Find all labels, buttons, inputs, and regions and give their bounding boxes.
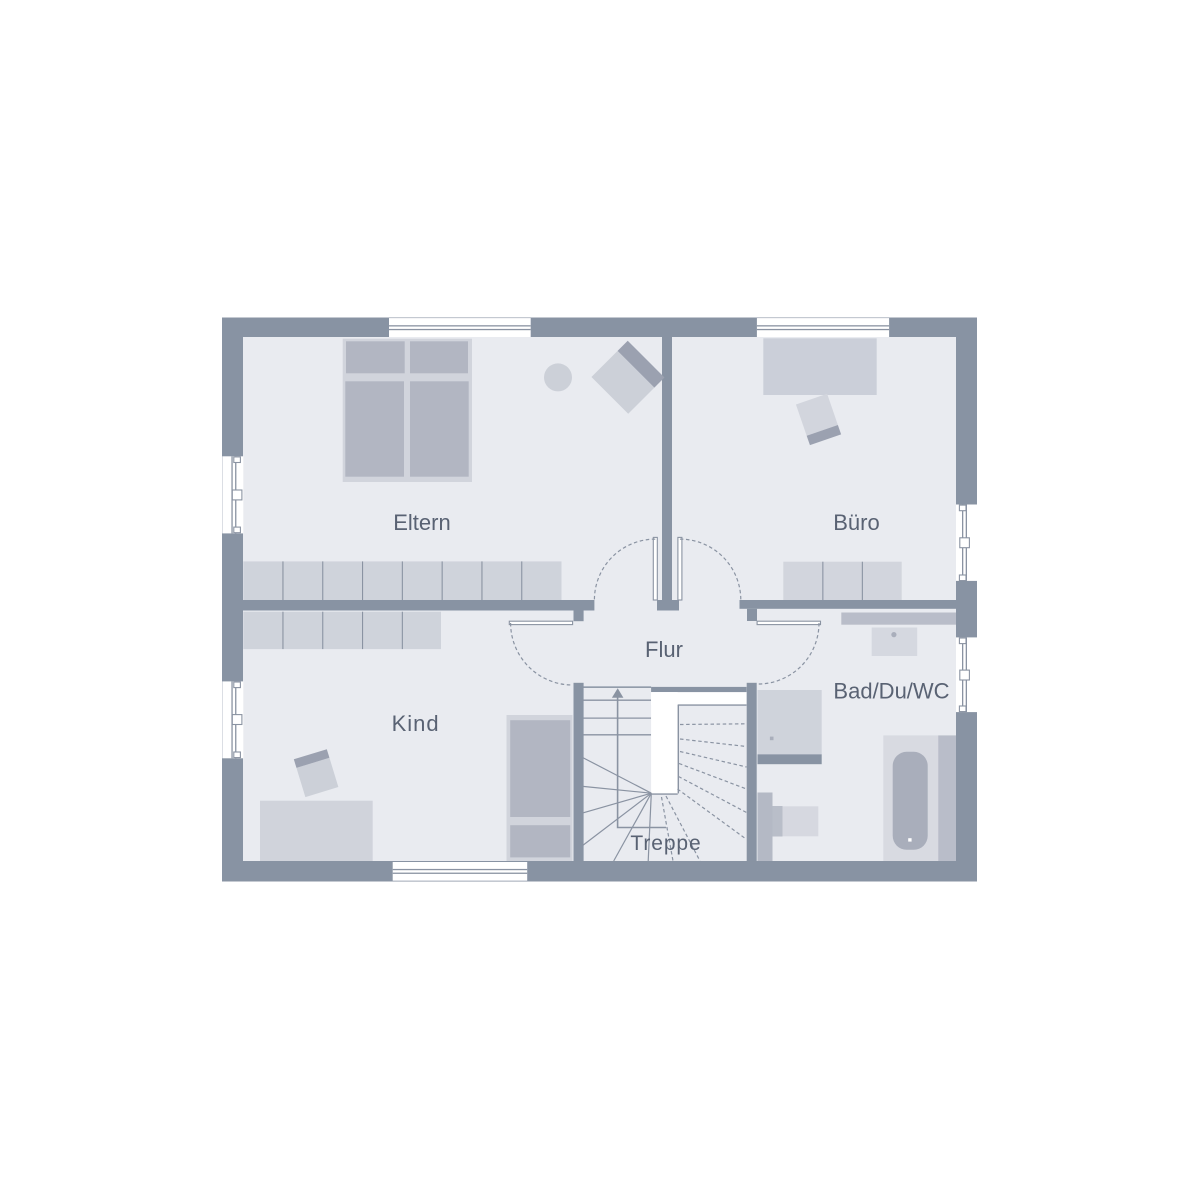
svg-text:Eltern: Eltern [393, 510, 450, 535]
svg-text:Treppe: Treppe [630, 832, 701, 855]
svg-text:Flur: Flur [645, 637, 683, 662]
svg-text:Kind: Kind [392, 711, 440, 736]
svg-text:Büro: Büro [833, 510, 879, 535]
svg-text:Bad/Du/WC: Bad/Du/WC [833, 679, 949, 704]
